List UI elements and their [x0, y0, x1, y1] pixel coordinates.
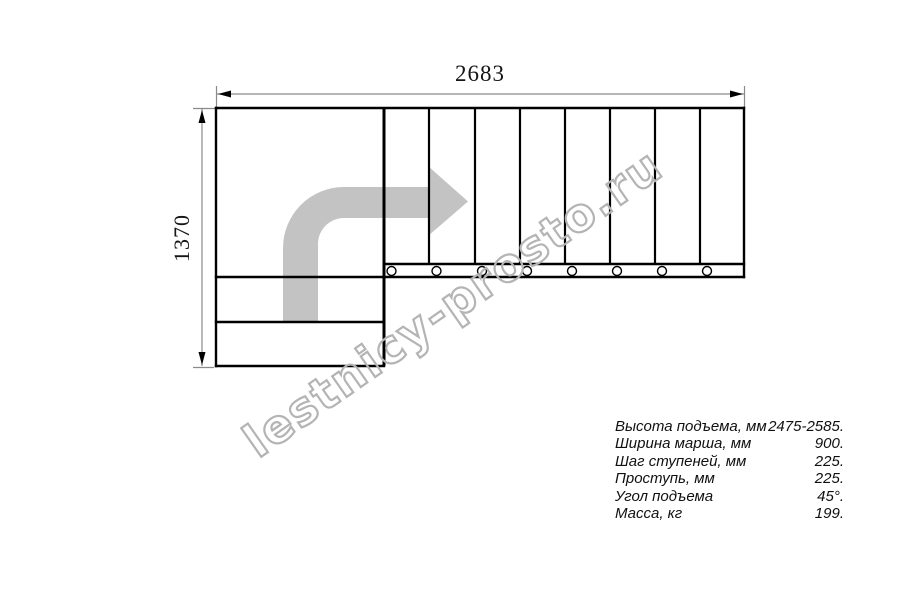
spec-label: Проступь, мм	[615, 470, 715, 487]
top-dimension-label: 2683	[216, 61, 744, 87]
left-dim-arrow-bottom	[199, 352, 206, 365]
spec-value: 225.	[815, 453, 844, 470]
spec-row-step-pitch: Шаг ступеней, мм 225.	[615, 453, 844, 470]
spec-label: Ширина марша, мм	[615, 435, 751, 452]
spec-row-angle: Угол подъема 45°.	[615, 488, 844, 505]
top-dim-arrow-right	[730, 91, 743, 98]
left-dim-arrow-top	[199, 110, 206, 123]
top-dimension-line	[217, 86, 745, 107]
left-dimension-label: 1370	[169, 214, 195, 262]
spec-value: 225.	[815, 470, 844, 487]
spec-row-height: Высота подъема, мм 2475-2585.	[615, 418, 844, 435]
staircase-drawing-page: 2683 1370 lestnicy-prosto.ru Высота подъ…	[0, 0, 900, 600]
left-dimension-line	[193, 108, 215, 368]
spec-table: Высота подъема, мм 2475-2585. Ширина мар…	[615, 418, 844, 522]
spec-row-tread: Проступь, мм 225.	[615, 470, 844, 487]
spec-row-flight-width: Ширина марша, мм 900.	[615, 435, 844, 452]
spec-value: 2475-2585.	[768, 418, 844, 435]
spec-label: Угол подъема	[615, 488, 713, 505]
spec-value: 900.	[815, 435, 844, 452]
top-dim-arrow-left	[218, 91, 231, 98]
step-riser-lines	[429, 108, 700, 264]
spec-value: 199.	[815, 505, 844, 522]
direction-arrow	[283, 166, 468, 321]
spec-row-mass: Масса, кг 199.	[615, 505, 844, 522]
spec-label: Масса, кг	[615, 505, 682, 522]
mount-hole-markers	[387, 267, 712, 276]
spec-value: 45°.	[817, 488, 844, 505]
spec-label: Высота подъема, мм	[615, 418, 767, 435]
spec-label: Шаг ступеней, мм	[615, 453, 746, 470]
